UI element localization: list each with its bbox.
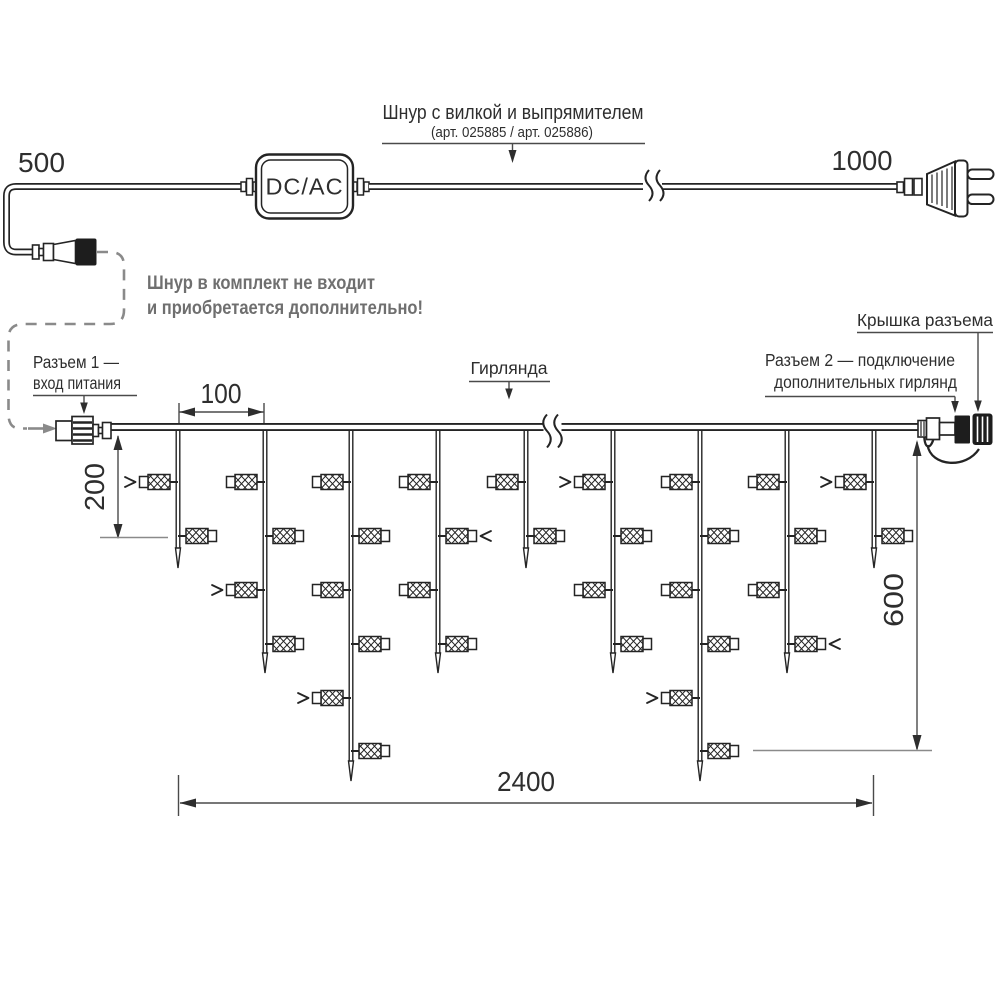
down-arrow-icon [80,403,88,415]
cord-break-icon [646,170,653,201]
dim-arrow-icon [180,799,197,808]
drop-tip-icon [349,761,354,781]
led-bulb-icon [298,691,351,706]
garland-callout: Гирлянда [469,358,550,400]
drop-tip-icon [872,548,877,568]
bulb-marker-arrow-icon [830,639,841,649]
dim-500-label: 500 [18,147,65,178]
drop-tip-icon [611,653,616,673]
led-bulb-icon [400,475,439,490]
led-bulb-icon [749,475,788,490]
connector1-callout: Разъем 1 — вход питания [33,352,137,414]
led-bulb-icon [488,475,527,490]
led-bulb-icon [787,637,840,652]
connector2-label-line2: дополнительных гирлянд [774,372,957,392]
input-connector-icon [56,417,111,445]
dc-connector-icon [33,239,97,266]
dim-2400-label: 2400 [497,766,555,797]
note-line1: Шнур в комплект не входит [147,272,375,294]
garland-drop [560,424,652,673]
garland-drop [125,424,217,568]
led-bulb-icon [125,475,178,490]
connector1-label-line1: Разъем 1 — [33,352,119,372]
led-bulb-icon [265,529,304,544]
dim-600-label: 600 [878,573,909,627]
led-bulb-icon [575,583,614,598]
diagram-canvas: DC/AC 500 1000 Шнур с вилкой и выпрямите… [0,0,1000,1000]
bulb-marker-arrow-icon [298,693,309,703]
not-included-note: Шнур в комплект не входит и приобретаетс… [147,272,423,319]
dim-arrow-icon [180,408,196,417]
dim-1000-label: 1000 [832,145,893,176]
led-bulb-icon [351,637,390,652]
dim-2400: 2400 [179,766,874,816]
garland-drop [749,424,841,673]
bulb-marker-arrow-icon [481,531,492,541]
led-bulb-icon [787,529,826,544]
dim-arrow-icon [114,435,123,450]
led-bulb-icon [351,744,390,759]
wire-break-icon [543,415,551,448]
bulb-marker-arrow-icon [647,693,658,703]
europlug-icon [897,161,994,217]
down-arrow-icon [509,150,517,163]
garland-wire [110,415,918,448]
led-bulb-icon [700,637,739,652]
connector1-label-line2: вход питания [33,373,121,393]
led-bulb-icon [874,529,913,544]
drop-tip-icon [176,548,181,568]
led-bulb-icon [265,637,304,652]
drop-tip-icon [436,653,441,673]
connector-cap-icon [973,414,993,446]
led-bulb-icon [613,637,652,652]
garland-drops-group [125,424,913,781]
drop-tip-icon [263,653,268,673]
dim-arrow-icon [913,440,922,456]
connector2-label-line1: Разъем 2 — подключение [765,350,955,370]
garland-drop [647,424,739,781]
led-bulb-icon [749,583,788,598]
dim-arrow-icon [856,799,873,808]
led-bulb-icon [560,475,613,490]
dcac-label: DC/AC [265,174,343,200]
drop-tip-icon [785,653,790,673]
led-bulb-icon [400,583,439,598]
led-bulb-icon [647,691,700,706]
led-bulb-icon [178,529,217,544]
led-bulb-icon [438,529,491,544]
dcac-converter-box: DC/AC [241,155,369,219]
garland-wiring-diagram: DC/AC 500 1000 Шнур с вилкой и выпрямите… [0,0,1000,1000]
cord-title: Шнур с вилкой и выпрямителем [383,101,644,124]
led-bulb-icon [227,475,266,490]
led-bulb-icon [700,529,739,544]
drop-tip-icon [524,548,529,568]
down-arrow-icon [505,389,513,400]
cord-title-callout: Шнур с вилкой и выпрямителем (арт. 02588… [382,101,645,163]
led-bulb-icon [821,475,874,490]
dim-arrow-icon [248,408,264,417]
garland-drop [821,424,913,568]
note-line2: и приобретается дополнительно! [147,297,423,319]
dim-100: 100 [179,378,264,423]
led-bulb-icon [351,529,390,544]
gray-arrow-icon [43,424,57,434]
cord-subtitle: (арт. 025885 / арт. 025886) [431,125,593,141]
led-bulb-icon [700,744,739,759]
dim-arrow-icon [913,735,922,751]
down-arrow-icon [951,401,959,413]
down-arrow-icon [974,401,982,413]
dim-200-label: 200 [79,463,110,511]
led-bulb-icon [438,637,477,652]
connector2-callout: Разъем 2 — подключение дополнительных ги… [765,350,959,413]
cap-label: Крышка разъема [857,310,993,330]
output-connector-icon [918,414,993,463]
garland-drop [400,424,492,673]
dashed-route [9,252,125,434]
garland-drop [298,424,390,781]
drop-tip-icon [698,761,703,781]
bulb-marker-arrow-icon [560,477,571,487]
garland-drop [488,424,565,568]
led-bulb-icon [313,583,352,598]
led-bulb-icon [662,583,701,598]
led-bulb-icon [526,529,565,544]
power-cord-right [369,170,899,201]
bulb-marker-arrow-icon [212,585,223,595]
led-bulb-icon [313,475,352,490]
wire-break-icon [554,415,562,448]
led-bulb-icon [613,529,652,544]
power-cord-left [7,187,243,253]
bulb-marker-arrow-icon [821,477,832,487]
bulb-marker-arrow-icon [125,477,136,487]
led-bulb-icon [662,475,701,490]
dim-100-label: 100 [201,378,242,409]
led-bulb-icon [212,583,265,598]
garland-label: Гирлянда [471,358,548,378]
garland-drop [212,424,304,673]
